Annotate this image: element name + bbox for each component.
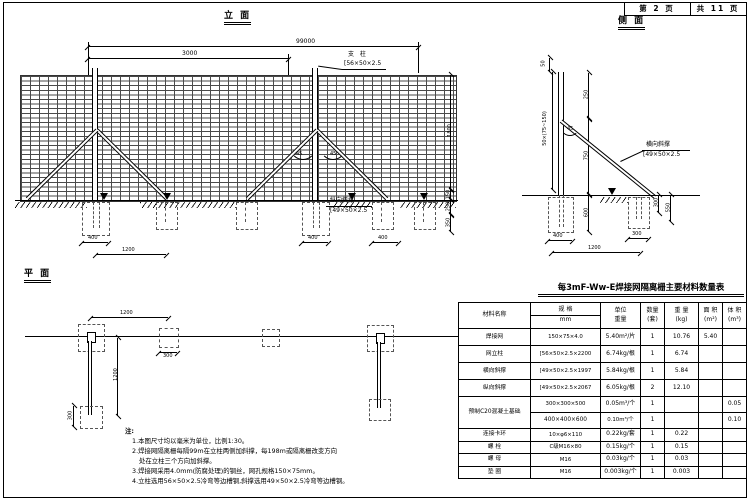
buried-brace-line bbox=[636, 197, 637, 219]
cell-material: 纵向斜撑 bbox=[459, 380, 531, 397]
buried-post-line bbox=[319, 202, 320, 228]
foundation-outline bbox=[156, 202, 178, 230]
table-row: 预制C20混凝土基础300×300×5000.05m³/个10.05 bbox=[459, 397, 747, 413]
dim-label: 1200 bbox=[120, 311, 133, 316]
header-weight: 重 量(kg) bbox=[665, 303, 699, 329]
buried-brace-line bbox=[423, 202, 424, 222]
header-unit-weight: 单位重量 bbox=[601, 303, 641, 329]
buried-post-line bbox=[99, 202, 100, 228]
ground-marker bbox=[163, 193, 171, 200]
cell-material: 横向斜撑 bbox=[459, 363, 531, 380]
cell-spec: [56×50×2.5×2200 bbox=[531, 346, 601, 363]
table-row: 垫 圈M160.003kg/个10.003 bbox=[459, 466, 747, 479]
dim-line bbox=[552, 252, 640, 253]
cell-unit_weight: 6.05kg/根 bbox=[601, 380, 641, 397]
dim-line bbox=[548, 240, 572, 241]
ground-marker bbox=[420, 193, 428, 200]
cell-unit_weight: 5.84kg/根 bbox=[601, 363, 641, 380]
header-area: 面 积(m²) bbox=[699, 303, 723, 329]
cell-spec: 400×400×600 bbox=[531, 413, 601, 429]
dim-label: 250 bbox=[584, 90, 589, 100]
dim-line bbox=[302, 242, 328, 243]
cell-material: 垫 圈 bbox=[459, 466, 531, 479]
table-row: 纵向斜撑[49×50×2.5×20676.05kg/根212.10 bbox=[459, 380, 747, 397]
extension-line bbox=[418, 42, 419, 73]
ground-marker bbox=[608, 188, 616, 195]
cell-unit_weight: 0.10m³/个 bbox=[601, 413, 641, 429]
cell-spec: M16 bbox=[531, 466, 601, 479]
cell-area bbox=[699, 397, 723, 413]
cell-weight: 0.15 bbox=[665, 441, 699, 454]
cell-qty: 1 bbox=[641, 413, 665, 429]
ground-line bbox=[15, 200, 458, 201]
dim-label: 1200 bbox=[114, 368, 119, 381]
cell-spec: C级M16×80 bbox=[531, 441, 601, 454]
dim-label: 300 bbox=[632, 232, 642, 237]
cell-spec: M16 bbox=[531, 454, 601, 467]
dim-line bbox=[91, 317, 168, 318]
dim-label: 99000 bbox=[296, 39, 315, 45]
dim-line bbox=[96, 254, 166, 255]
dim-label: 400 bbox=[88, 236, 98, 241]
buried-post-line bbox=[563, 195, 564, 227]
foundation-outline-plan bbox=[159, 328, 179, 348]
table-row: 螺 母M160.03kg/个10.03 bbox=[459, 454, 747, 467]
dim-line bbox=[628, 238, 648, 239]
cell-area bbox=[699, 466, 723, 479]
post-callout-spec: [56×50×2.5 bbox=[344, 61, 381, 67]
cell-qty: 1 bbox=[641, 329, 665, 346]
cell-qty: 1 bbox=[641, 441, 665, 454]
dim-label: 300 bbox=[163, 354, 173, 359]
cell-qty: 1 bbox=[641, 454, 665, 467]
cell-material: 连接卡环 bbox=[459, 429, 531, 442]
ground-marker bbox=[100, 193, 108, 200]
cell-spec: 10×φ6×110 bbox=[531, 429, 601, 442]
cell-qty: 2 bbox=[641, 380, 665, 397]
header-volume: 体 积(m³) bbox=[723, 303, 747, 329]
cell-unit_weight: 5.40m²/片 bbox=[601, 329, 641, 346]
foundation-outline bbox=[414, 202, 436, 230]
foundation-outline bbox=[628, 197, 650, 229]
dim-label: 250 bbox=[446, 202, 451, 212]
cell-material: 网立柱 bbox=[459, 346, 531, 363]
drawing-sheet: 第 2 页 共 11 页 立 面 99000 3000 45 45 支 柱 [5… bbox=[0, 0, 750, 500]
dim-label: 600 bbox=[584, 208, 589, 218]
cell-material: 螺 母 bbox=[459, 454, 531, 467]
cell-volume bbox=[723, 363, 747, 380]
cell-qty: 1 bbox=[641, 346, 665, 363]
note-line: 1.本图尺寸均以毫米为单位，比例1:30。 bbox=[132, 437, 349, 447]
cell-volume: 0.05 bbox=[723, 397, 747, 413]
cell-volume bbox=[723, 346, 747, 363]
dim-label: 350 bbox=[446, 218, 451, 228]
foundation-outline bbox=[372, 202, 394, 230]
cell-unit_weight: 0.22kg/套 bbox=[601, 429, 641, 442]
foundation-outline-plan bbox=[369, 399, 391, 421]
post-callout-label: 支 柱 bbox=[348, 52, 368, 58]
extension-line bbox=[88, 42, 89, 75]
table-header-row: 材料名称 规 格mm 单位重量 数量(套) 重 量(kg) 面 积(m²) 体 … bbox=[459, 303, 747, 329]
cell-weight: 5.84 bbox=[665, 363, 699, 380]
buried-post-line bbox=[559, 195, 560, 227]
header-material: 材料名称 bbox=[459, 303, 531, 329]
buried-brace-line bbox=[641, 197, 642, 219]
table-row: 横向斜撑[49×50×2.5×19975.84kg/根15.84 bbox=[459, 363, 747, 380]
dim-label: 300 bbox=[654, 198, 659, 208]
cell-weight: 10.76 bbox=[665, 329, 699, 346]
dim-line bbox=[552, 72, 553, 190]
cell-volume: 0.10 bbox=[723, 413, 747, 429]
cell-volume bbox=[723, 454, 747, 467]
brace-plan bbox=[88, 341, 92, 415]
cell-area bbox=[699, 413, 723, 429]
material-table-title: 每3mF-Ww-E焊接网隔离栅主要材料数量表 bbox=[538, 281, 744, 295]
buried-post-line bbox=[313, 202, 314, 228]
cell-weight bbox=[665, 397, 699, 413]
cell-unit_weight: 0.05m³/个 bbox=[601, 397, 641, 413]
plan-title: 平 面 bbox=[24, 266, 51, 281]
cell-material: 螺 栓 bbox=[459, 441, 531, 454]
buried-post-line bbox=[93, 202, 94, 228]
dim-label: 1200 bbox=[588, 246, 601, 251]
cell-weight: 6.74 bbox=[665, 346, 699, 363]
cell-volume bbox=[723, 441, 747, 454]
cell-unit_weight: 6.74kg/根 bbox=[601, 346, 641, 363]
cell-volume bbox=[723, 380, 747, 397]
angle-label: 45 bbox=[567, 127, 573, 132]
foundation-outline bbox=[548, 197, 574, 233]
brace-callout-label: 纵向斜撑 bbox=[330, 198, 354, 204]
table-row: 连接卡环10×φ6×1100.22kg/套10.22 bbox=[459, 429, 747, 442]
foundation-outline bbox=[236, 202, 258, 230]
dim-line bbox=[88, 58, 288, 59]
cell-area bbox=[699, 429, 723, 442]
ground-hatch bbox=[15, 202, 87, 208]
page-total: 共 11 页 bbox=[690, 2, 746, 15]
dim-line bbox=[372, 242, 398, 243]
leader-line bbox=[342, 69, 386, 70]
cell-area bbox=[699, 454, 723, 467]
ground-hatch bbox=[140, 202, 236, 208]
cell-unit_weight: 0.15kg/个 bbox=[601, 441, 641, 454]
brace-callout-spec: [49×50×2.5 bbox=[330, 208, 367, 214]
dim-label: 50×(75~150) bbox=[543, 111, 548, 146]
cell-material: 焊接网 bbox=[459, 329, 531, 346]
cell-qty: 1 bbox=[641, 363, 665, 380]
cell-unit_weight: 0.003kg/个 bbox=[601, 466, 641, 479]
cell-qty: 1 bbox=[641, 466, 665, 479]
cell-area bbox=[699, 346, 723, 363]
dim-label: 750 bbox=[584, 151, 589, 161]
foundation-outline-plan bbox=[80, 406, 103, 429]
angle-arc bbox=[290, 134, 316, 160]
cell-spec: 300×300×500 bbox=[531, 397, 601, 413]
cell-area bbox=[699, 380, 723, 397]
cell-area bbox=[699, 363, 723, 380]
cell-volume bbox=[723, 429, 747, 442]
cell-material: 预制C20混凝土基础 bbox=[459, 397, 531, 429]
header-qty: 数量(套) bbox=[641, 303, 665, 329]
cell-spec: [49×50×2.5×2067 bbox=[531, 380, 601, 397]
notes-label: 注: bbox=[125, 427, 349, 437]
cell-weight bbox=[665, 413, 699, 429]
leader-line bbox=[326, 206, 372, 207]
notes-block: 注: 1.本图尺寸均以毫米为单位，比例1:30。 2.焊接网隔离栅每隔99m在立… bbox=[125, 427, 349, 487]
dim-label: 50 bbox=[542, 60, 547, 66]
dim-label: 400 bbox=[308, 236, 318, 241]
dim-line bbox=[82, 242, 108, 243]
buried-brace-line bbox=[165, 202, 166, 222]
cell-weight: 0.003 bbox=[665, 466, 699, 479]
brace-callout-label: 横向斜撑 bbox=[646, 142, 670, 148]
brace-callout-spec: [49×50×2.5 bbox=[643, 152, 680, 158]
cell-weight: 12.10 bbox=[665, 380, 699, 397]
buried-brace-line bbox=[245, 202, 246, 222]
ground-hatch bbox=[600, 197, 628, 203]
table-row: 螺 栓C级M16×800.15kg/个10.15 bbox=[459, 441, 747, 454]
foundation-outline bbox=[302, 202, 330, 236]
cell-spec: 150×75×4.0 bbox=[531, 329, 601, 346]
cell-volume bbox=[723, 466, 747, 479]
table-row: 网立柱[56×50×2.5×22006.74kg/根16.74 bbox=[459, 346, 747, 363]
cell-weight: 0.22 bbox=[665, 429, 699, 442]
material-table: 材料名称 规 格mm 单位重量 数量(套) 重 量(kg) 面 积(m²) 体 … bbox=[458, 302, 747, 479]
cell-area: 5.40 bbox=[699, 329, 723, 346]
note-line: 2.焊接网隔离栅每隔99m在立柱两侧加斜撑，每198m或隔离栅改变方向 bbox=[132, 447, 349, 457]
extension-line bbox=[288, 54, 289, 75]
cell-unit_weight: 0.03kg/个 bbox=[601, 454, 641, 467]
side-title: 侧 面 bbox=[618, 13, 645, 28]
cell-qty: 1 bbox=[641, 429, 665, 442]
dim-label: 400 bbox=[378, 236, 388, 241]
leader-line bbox=[642, 150, 690, 151]
angle-label: 45 bbox=[296, 152, 302, 157]
header-spec: 规 格mm bbox=[531, 303, 601, 329]
dim-line bbox=[88, 46, 418, 47]
note-line: 4.立柱选用56×50×2.5冷弯等边槽钢,斜撑选用49×50×2.5冷弯等边槽… bbox=[132, 477, 349, 487]
foundation-outline-plan bbox=[262, 329, 280, 347]
foundation-outline bbox=[82, 202, 110, 236]
dim-label: 400 bbox=[553, 234, 563, 239]
cell-spec: [49×50×2.5×1997 bbox=[531, 363, 601, 380]
dim-line bbox=[549, 58, 550, 72]
table-row: 焊接网150×75×4.05.40m²/片110.765.40 bbox=[459, 329, 747, 346]
cell-weight: 0.03 bbox=[665, 454, 699, 467]
buried-brace-line bbox=[381, 202, 382, 222]
cell-qty: 1 bbox=[641, 397, 665, 413]
note-line: 处在立柱三个方向加斜撑。 bbox=[132, 457, 349, 467]
dim-label: 1800 bbox=[448, 124, 453, 137]
cell-area bbox=[699, 441, 723, 454]
dim-label: 3000 bbox=[182, 51, 197, 57]
dim-label: 1200 bbox=[122, 248, 135, 253]
elevation-title: 立 面 bbox=[224, 8, 251, 23]
angle-label: 45 bbox=[330, 152, 336, 157]
dim-label: 550 bbox=[666, 203, 671, 213]
dim-label: 300 bbox=[68, 411, 73, 421]
note-line: 3.焊接网采用4.0mm(防腐处理)的钢丝，网孔规格150×75mm。 bbox=[132, 467, 349, 477]
cell-volume bbox=[723, 329, 747, 346]
